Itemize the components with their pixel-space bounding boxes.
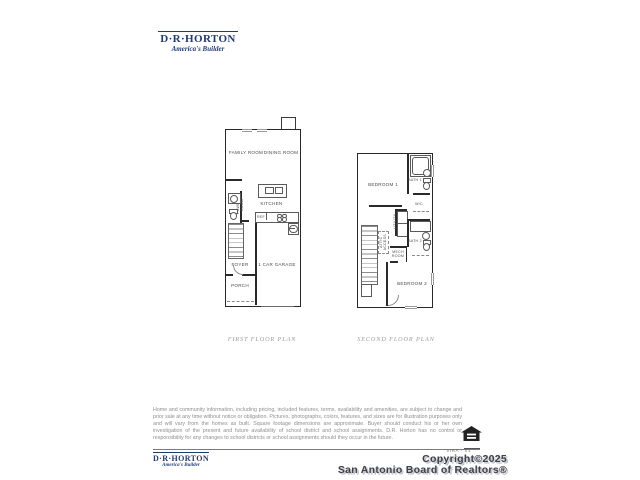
island-sink [265,187,274,194]
garage-door [261,306,294,307]
family-room-label: FAMILY ROOM [228,150,264,155]
attribution-watermark: San Antonio Board of Realtors® [338,465,507,476]
closet-rod [413,211,429,212]
equal-housing-logo [460,426,483,450]
logo-rule [153,452,209,453]
range-burner [282,217,287,222]
front-wall [226,274,233,276]
porch-label: PORCH [227,283,253,288]
bath2-tub [410,221,431,232]
stairs [361,225,378,285]
wc-label: W/C [411,202,427,206]
bath1-toilet-bowl [423,182,430,190]
bedroom1-wall [369,205,402,207]
island-fixture [275,187,283,194]
stair-landing [361,284,372,297]
logo-tagline: America's Builder [158,45,238,53]
wall [413,193,430,195]
mech-room-label: MECH ROOM [390,250,406,258]
water-heater-mark [290,228,295,229]
window [405,306,417,309]
window [431,165,434,177]
second-floor-plan: BEDROOM 1 BATH 1 W/C UTILITY ATTIC ACCES… [357,153,435,311]
mech-wall [390,261,398,263]
disclaimer-text: Home and community information, includin… [153,407,462,442]
bath1-wall [407,154,409,194]
logo-tagline: America's Builder [153,463,209,469]
ref-label: REF [256,215,266,219]
garage-label: 1 CAR GARAGE [257,262,297,267]
water-heater-tank [289,225,298,234]
bath2-sink [422,232,430,240]
front-wall [242,274,256,276]
window [242,129,252,132]
porch-edge [227,301,254,302]
logo-name: D·R·HORTON [158,33,238,45]
bath1-label: BATH 1 [407,178,423,182]
range-burner [277,217,282,222]
window [257,129,267,132]
dining-room-label: DINING ROOM [263,150,299,155]
closet-rod [412,255,429,256]
wall [240,220,249,222]
logo-name: D·R·HORTON [153,454,209,463]
logo-rule [158,31,238,32]
attic-access-label: ATTIC ACCESS [378,232,386,252]
window [431,273,434,285]
bath1-sink [423,169,431,177]
wall [226,179,242,181]
first-floor-plan: FAMILY ROOM DINING ROOM POWDER ROOM KITC… [225,117,303,309]
mech-wall [390,246,407,248]
drhorton-logo: D·R·HORTON America's Builder [158,31,238,53]
equal-housing-icon [461,426,482,443]
stairs [228,223,244,259]
powder-sink-bowl [230,195,238,203]
footer-drhorton-logo: D·R·HORTON America's Builder [153,452,209,469]
second-floor-caption: SECOND FLOOR PLAN [346,336,446,343]
bedroom1-label: BEDROOM 1 [363,182,403,187]
footer-right: VIRA - V1 Copyright©2025 San Antonio Boa… [338,448,507,476]
bedroom2-label: BEDROOM 2 [395,281,429,286]
first-floor-caption: FIRST FLOOR PLAN [212,336,312,343]
bath2-label: BATH 2 [407,239,423,243]
kitchen-label: KITCHEN [258,201,285,206]
floorplan-flyer: D·R·HORTON America's Builder FAMILY ROOM… [0,0,640,480]
